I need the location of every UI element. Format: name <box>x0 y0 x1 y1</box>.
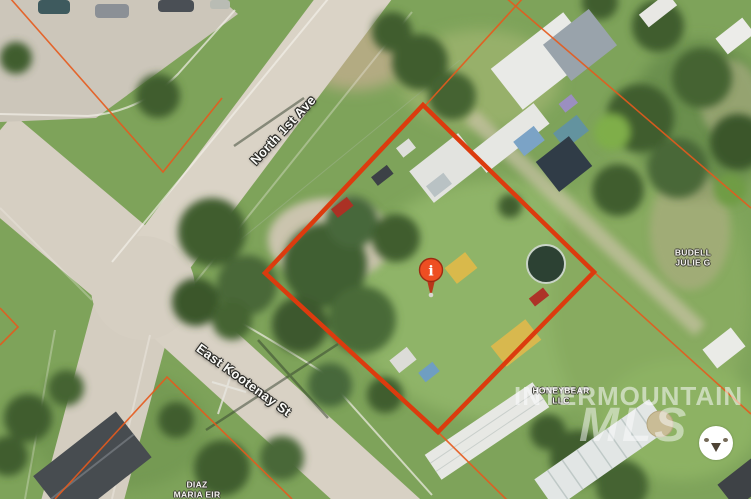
marker-info-glyph: i <box>428 264 433 280</box>
aerial-imagery: i <box>0 0 751 499</box>
round-pool <box>527 245 565 283</box>
aerial-map[interactable]: i North 1st Ave East Kootenay St BUDELL … <box>0 0 751 499</box>
